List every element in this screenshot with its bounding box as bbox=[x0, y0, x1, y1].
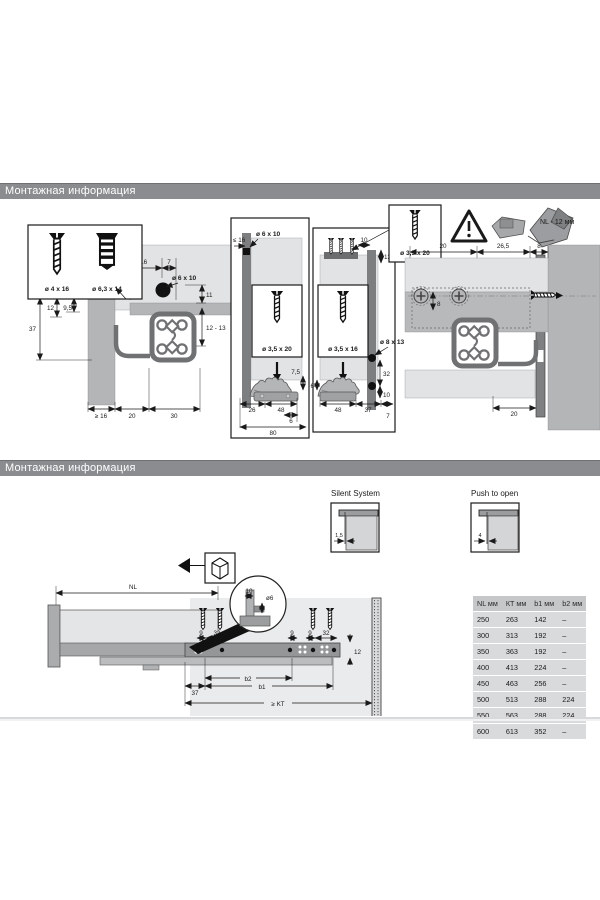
col-header-b2: b2 мм bbox=[558, 596, 586, 612]
cell-nl: 400 bbox=[473, 660, 502, 676]
dim-37: 37 bbox=[191, 690, 199, 697]
cell-nl: 500 bbox=[473, 692, 502, 708]
front-panel-block bbox=[488, 516, 518, 550]
euro-cam-screw-icon bbox=[412, 287, 431, 306]
cell-nl: 250 bbox=[473, 612, 502, 628]
drill-hole-square bbox=[243, 248, 250, 255]
p1-dim-6: 6 bbox=[289, 418, 293, 425]
dim-b2: b2 bbox=[244, 676, 252, 683]
silent-system-option: Silent System 1,5 bbox=[331, 489, 380, 552]
table-row: 350 363 192 – bbox=[473, 644, 586, 660]
euro-cam-screw-icon bbox=[450, 287, 469, 306]
p2-screw-label: ø 3,5 x 16 bbox=[328, 346, 358, 353]
drawer-side-profile-bar bbox=[242, 233, 251, 408]
cell-b2: – bbox=[558, 724, 586, 740]
cell-b2: 224 bbox=[558, 708, 586, 724]
cell-b1: 224 bbox=[530, 660, 558, 676]
warning-triangle-icon bbox=[452, 211, 486, 241]
dim-9c: 9 bbox=[308, 630, 312, 637]
cell-nl: 350 bbox=[473, 644, 502, 660]
dim-32b: 32 bbox=[322, 630, 330, 637]
drill-hole-dot bbox=[368, 382, 376, 390]
cell-b2: – bbox=[558, 660, 586, 676]
cabinet-back-strip bbox=[372, 598, 381, 716]
nl-minus-12-note: NL - 12 мм bbox=[540, 219, 574, 226]
table-row: 550 563 288 224 bbox=[473, 708, 586, 724]
runner-lower-profile bbox=[100, 657, 332, 665]
col-header-nl: NL мм bbox=[473, 596, 502, 612]
cell-b1: 256 bbox=[530, 676, 558, 692]
p1-screw-label: ø 3,5 x 20 bbox=[262, 346, 292, 353]
mounting-plate-top bbox=[405, 258, 548, 292]
runner-profile-section bbox=[454, 320, 496, 366]
r-dim-8b: 8 bbox=[437, 301, 441, 308]
silent-gap-dim: 1,5 bbox=[335, 533, 343, 539]
drill-hole-dot bbox=[156, 283, 171, 298]
drawer-side-panel-diagram-left: ≤ 16 ø 6 x 10 ø 3,5 x 20 7,5 26 bbox=[231, 218, 309, 438]
p2-dim-10b: 10 bbox=[383, 392, 391, 399]
right-cross-section-diagram: 20 26,5 8 8 20 bbox=[405, 243, 600, 430]
cell-b2: – bbox=[558, 612, 586, 628]
screw-callout-box-p1: ø 3,5 x 20 bbox=[252, 285, 302, 357]
catalog-page: Монтажная информация bbox=[0, 0, 600, 900]
table-row: 600 613 352 – bbox=[473, 724, 586, 740]
cell-nl: 450 bbox=[473, 676, 502, 692]
cell-nl: 600 bbox=[473, 724, 502, 740]
r-dim-8: 8 bbox=[537, 243, 541, 250]
dim-9b: 9 bbox=[290, 630, 294, 637]
cabinet-bottom-band bbox=[405, 370, 535, 398]
cell-kt: 513 bbox=[502, 692, 530, 708]
screw1-label: ø 4 x 16 bbox=[45, 286, 70, 293]
cell-b2: 224 bbox=[558, 692, 586, 708]
drawer-body bbox=[60, 610, 218, 645]
section-header-1: Монтажная информация bbox=[0, 183, 600, 199]
p1-dim-48: 48 bbox=[277, 407, 285, 414]
p1-dim-75: 7,5 bbox=[291, 369, 300, 376]
table-row: 450 463 256 – bbox=[473, 676, 586, 692]
screw-callout-box-left: ø 4 x 16 ø 6,3 x 14 bbox=[28, 225, 142, 299]
drill-size-label: ø 6 x 10 bbox=[172, 275, 197, 282]
euro-screw-icon bbox=[96, 233, 118, 270]
cabinet-cube-icon bbox=[205, 553, 235, 583]
drill-hole-dot bbox=[368, 354, 376, 362]
depth-direction-arrow bbox=[178, 558, 190, 573]
p2-dim-37: 37 bbox=[364, 407, 372, 414]
section-header-1-label: Монтажная информация bbox=[5, 185, 136, 197]
cell-b1: 288 bbox=[530, 708, 558, 724]
drawer-bottom-rail bbox=[60, 643, 186, 656]
p1-dim-26: 26 bbox=[248, 407, 256, 414]
dim-12-13: 12 - 13 bbox=[206, 325, 226, 332]
cell-kt: 613 bbox=[502, 724, 530, 740]
table-row: 400 413 224 – bbox=[473, 660, 586, 676]
p1-drill-label: ø 6 x 10 bbox=[256, 231, 281, 238]
mounting-bracket-arm bbox=[116, 325, 150, 356]
runner-profile-section bbox=[152, 314, 194, 360]
cabinet-wall-panel bbox=[548, 245, 600, 430]
section-header-2-label: Монтажная информация bbox=[5, 462, 136, 474]
runner-foot bbox=[143, 665, 159, 670]
cell-kt: 263 bbox=[502, 612, 530, 628]
cell-b1: 352 bbox=[530, 724, 558, 740]
p2-dim-6: 6 bbox=[310, 383, 314, 390]
front-latch-hardware-icon bbox=[528, 208, 573, 247]
dim-12: 12 bbox=[354, 649, 362, 656]
front-panel-block bbox=[346, 516, 377, 550]
front-gap-cap bbox=[479, 510, 518, 516]
p2-dim-32: 32 bbox=[383, 371, 391, 378]
coupling-hardware-icon bbox=[492, 217, 525, 238]
left-cross-section-diagram: ø 6 x 10 ≤ 16 7 37 12 9,5 bbox=[28, 225, 235, 420]
detail-circle: 10 ø6 bbox=[230, 576, 286, 632]
r-dim-20b: 20 bbox=[510, 411, 518, 418]
cell-b1: 192 bbox=[530, 628, 558, 644]
cell-nl: 300 bbox=[473, 628, 502, 644]
dim-9-5: 9,5 bbox=[63, 305, 72, 312]
col-header-kt: КТ мм bbox=[502, 596, 530, 612]
dim-11: 11 bbox=[206, 292, 213, 299]
cell-kt: 313 bbox=[502, 628, 530, 644]
page-edge-shadow bbox=[0, 719, 600, 721]
runner-base-plate bbox=[320, 392, 356, 401]
dim-30: 30 bbox=[170, 413, 178, 420]
dim-20: 20 bbox=[128, 413, 136, 420]
mounting-drawing-top: ø 6 x 10 ≤ 16 7 37 12 9,5 bbox=[0, 200, 600, 450]
p2-dim-48: 48 bbox=[334, 407, 342, 414]
p2-dim-7: 7 bbox=[386, 413, 390, 420]
dim-b1: b1 bbox=[258, 684, 266, 691]
detail-dim-10: 10 bbox=[245, 588, 253, 595]
p2-drill-label: ø 8 x 13 bbox=[380, 339, 405, 346]
dim-7: 7 bbox=[167, 259, 171, 266]
table-row: 250 263 142 – bbox=[473, 612, 586, 628]
dim-kt: ≥ KT bbox=[271, 701, 284, 708]
dim-9a: 9 bbox=[199, 630, 203, 637]
p2-dim-10: 10 bbox=[360, 237, 368, 244]
p1-dim-le16: ≤ 16 bbox=[233, 237, 246, 244]
cell-kt: 563 bbox=[502, 708, 530, 724]
dim-nl: NL bbox=[129, 584, 138, 591]
options-strip: Silent System 1,5 Push to open 4 bbox=[0, 480, 600, 556]
r-dim-265: 26,5 bbox=[497, 243, 510, 250]
p1-dim-80: 80 bbox=[269, 430, 277, 437]
table-header-row: NL мм КТ мм b1 мм b2 мм bbox=[473, 596, 586, 612]
drawer-front-panel bbox=[48, 605, 60, 667]
push-to-open-option: Push to open 4 bbox=[471, 489, 519, 552]
cell-b2: – bbox=[558, 676, 586, 692]
table-row: 500 513 288 224 bbox=[473, 692, 586, 708]
section-header-2: Монтажная информация bbox=[0, 460, 600, 476]
dim-37: 37 bbox=[29, 326, 37, 333]
push-to-open-label: Push to open bbox=[471, 489, 518, 498]
table-row: 300 313 192 – bbox=[473, 628, 586, 644]
callout-screw-label: ø 3,5 x 20 bbox=[400, 250, 430, 257]
cell-b2: – bbox=[558, 628, 586, 644]
cell-b1: 288 bbox=[530, 692, 558, 708]
mounting-bracket-arm bbox=[498, 340, 536, 364]
cell-kt: 413 bbox=[502, 660, 530, 676]
cell-kt: 463 bbox=[502, 676, 530, 692]
r-dim-20: 20 bbox=[439, 243, 447, 250]
dim-ge16: ≥ 16 bbox=[95, 413, 108, 420]
push-gap-dim: 4 bbox=[478, 533, 481, 539]
cell-nl: 550 bbox=[473, 708, 502, 724]
col-header-b1: b1 мм bbox=[530, 596, 558, 612]
silent-system-label: Silent System bbox=[331, 489, 380, 498]
cell-kt: 363 bbox=[502, 644, 530, 660]
cell-b2: – bbox=[558, 644, 586, 660]
dim-12: 12 bbox=[47, 305, 55, 312]
detail-dim-d6: ø6 bbox=[266, 595, 274, 602]
screw-callout-box-p2: ø 3,5 x 16 bbox=[318, 285, 368, 357]
cell-b1: 142 bbox=[530, 612, 558, 628]
cell-b1: 192 bbox=[530, 644, 558, 660]
